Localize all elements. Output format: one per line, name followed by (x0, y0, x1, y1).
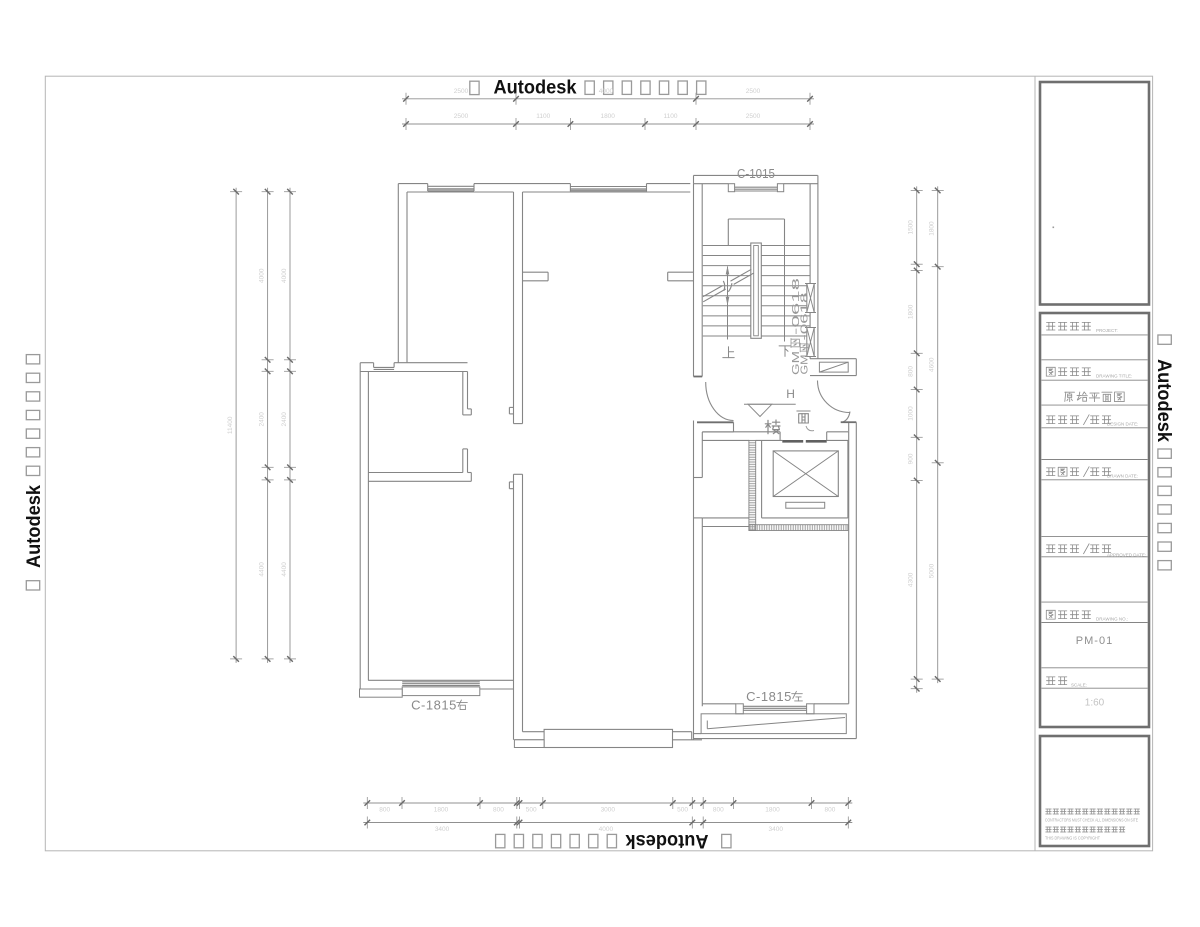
svg-text:C-1815: C-1815 (411, 698, 457, 713)
svg-text:PM-01: PM-01 (1076, 635, 1113, 647)
svg-text:1500: 1500 (908, 220, 915, 235)
svg-text:3400: 3400 (769, 826, 784, 833)
svg-text:500: 500 (526, 807, 537, 814)
svg-text:PROJECT:: PROJECT: (1096, 328, 1118, 333)
svg-text:3000: 3000 (601, 807, 616, 814)
svg-text:800: 800 (908, 366, 915, 377)
svg-text:GM: GM (800, 355, 811, 375)
svg-text:800: 800 (493, 807, 504, 814)
svg-text:1100: 1100 (536, 113, 550, 120)
svg-text:4000: 4000 (281, 268, 288, 283)
svg-text:4400: 4400 (259, 562, 266, 577)
svg-text:1800: 1800 (765, 807, 780, 814)
svg-text:800: 800 (824, 807, 835, 814)
svg-text:2400: 2400 (259, 412, 266, 427)
svg-text:2500: 2500 (454, 113, 469, 120)
svg-text:2500: 2500 (454, 88, 469, 95)
svg-text:Autodesk: Autodesk (1153, 359, 1175, 442)
svg-text:11400: 11400 (227, 416, 234, 434)
svg-text:1800: 1800 (908, 304, 915, 319)
svg-text:1800: 1800 (929, 221, 936, 236)
svg-text:2500: 2500 (746, 113, 761, 120)
svg-text:CONTRACTORS MUST CHECK ALL DIM: CONTRACTORS MUST CHECK ALL DIMENSIONS ON… (1045, 818, 1138, 823)
svg-text:5000: 5000 (929, 563, 936, 578)
svg-text:DRAWING NO.:: DRAWING NO.: (1096, 617, 1128, 622)
svg-text:4000: 4000 (259, 268, 266, 283)
svg-text:1800: 1800 (600, 113, 615, 120)
svg-text:Autodesk: Autodesk (494, 77, 577, 99)
svg-text:1800: 1800 (434, 807, 449, 814)
svg-text:THIS DRAWING IS COPYRIGHT: THIS DRAWING IS COPYRIGHT (1045, 836, 1100, 841)
svg-text:900: 900 (908, 453, 915, 464)
svg-text:SCALE:: SCALE: (1071, 683, 1087, 688)
svg-text:1000: 1000 (908, 406, 915, 421)
svg-text:800: 800 (713, 807, 724, 814)
svg-text:2400: 2400 (281, 412, 288, 427)
svg-text:DRAWN DATE:: DRAWN DATE: (1107, 474, 1138, 479)
svg-text:Autodesk: Autodesk (625, 830, 708, 852)
svg-text:4400: 4400 (281, 562, 288, 577)
svg-text:DRAWING TITLE:: DRAWING TITLE: (1096, 374, 1132, 379)
svg-text:C-1015: C-1015 (737, 167, 775, 181)
svg-text:3400: 3400 (435, 826, 450, 833)
svg-text:DESIGN DATE:: DESIGN DATE: (1107, 422, 1138, 427)
svg-text:1:60: 1:60 (1085, 698, 1105, 709)
svg-text:800: 800 (379, 807, 390, 814)
svg-text:Autodesk: Autodesk (23, 485, 45, 568)
svg-text:4600: 4600 (929, 357, 936, 372)
svg-text:4300: 4300 (908, 572, 915, 587)
svg-text:-0618: -0618 (800, 292, 811, 341)
svg-text:4000: 4000 (599, 826, 614, 833)
svg-text:1100: 1100 (664, 113, 678, 120)
svg-text:500: 500 (677, 807, 688, 814)
svg-text:H: H (786, 387, 795, 401)
svg-text:2500: 2500 (746, 88, 761, 95)
svg-text:4000: 4000 (599, 88, 614, 95)
svg-text:C-1815: C-1815 (746, 689, 792, 704)
svg-text:APPROVED DATE:: APPROVED DATE: (1107, 553, 1146, 558)
